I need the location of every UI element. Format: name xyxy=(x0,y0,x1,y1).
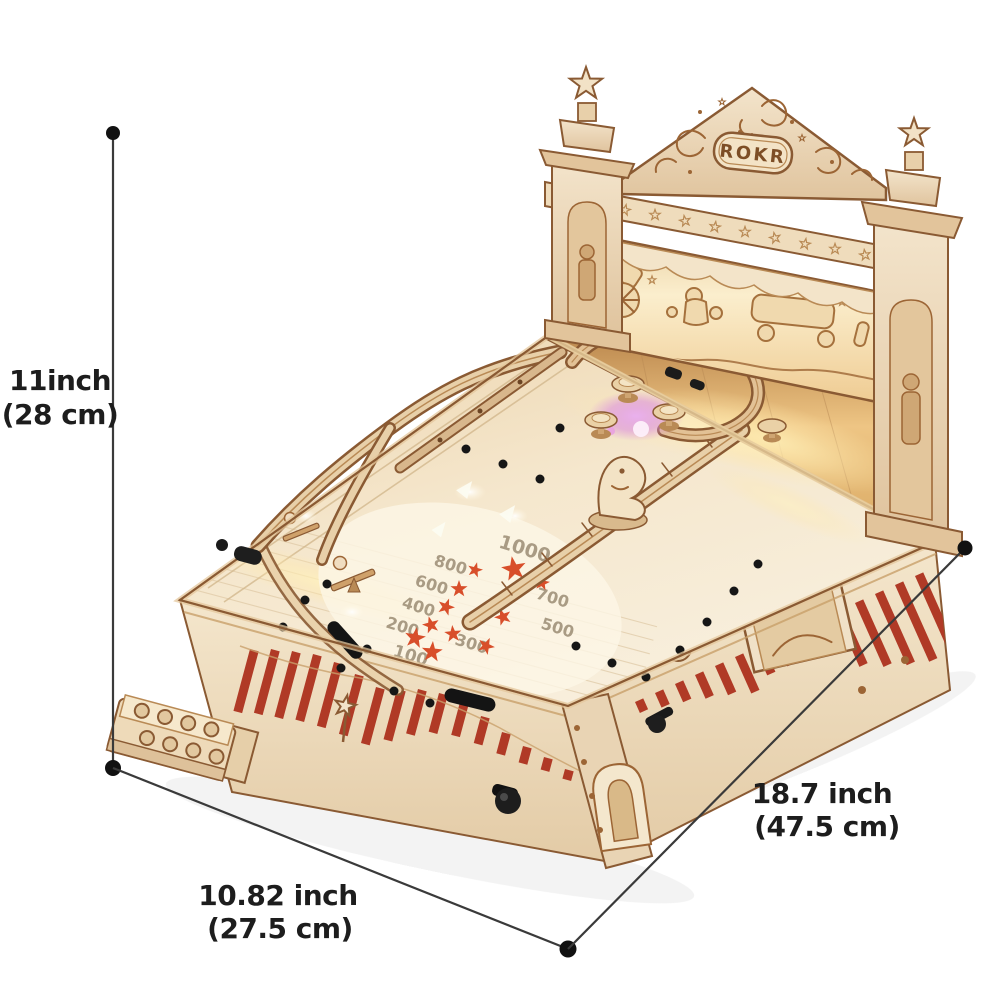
toy-soldier-carving xyxy=(579,245,595,300)
length-label-cm: (47.5 cm) xyxy=(754,810,900,843)
star-finial-icon xyxy=(570,67,602,98)
height-label-inches: 11inch xyxy=(9,364,111,397)
product-dimensions-image: 1000 800 600 400 200 100 300 500 700 xyxy=(0,0,1000,1000)
height-label-cm: (28 cm) xyxy=(2,398,119,431)
length-dimension-endpoint xyxy=(958,541,973,556)
length-label-inches: 18.7 inch xyxy=(752,777,892,810)
rokr-logo-badge: ROKR xyxy=(712,131,793,175)
height-dimension-endpoint-top xyxy=(106,126,120,140)
width-label-inches: 10.82 inch xyxy=(198,879,357,912)
star-finial-icon xyxy=(900,118,929,145)
left-pillar xyxy=(540,67,634,352)
marquee-gable: ROKR xyxy=(618,88,886,200)
pinball-machine-illustration: 1000 800 600 400 200 100 300 500 700 xyxy=(0,0,1000,1000)
width-label-cm: (27.5 cm) xyxy=(207,912,353,945)
height-dimension: 11inch (28 cm) xyxy=(2,126,121,776)
toy-soldier-carving xyxy=(902,374,920,444)
